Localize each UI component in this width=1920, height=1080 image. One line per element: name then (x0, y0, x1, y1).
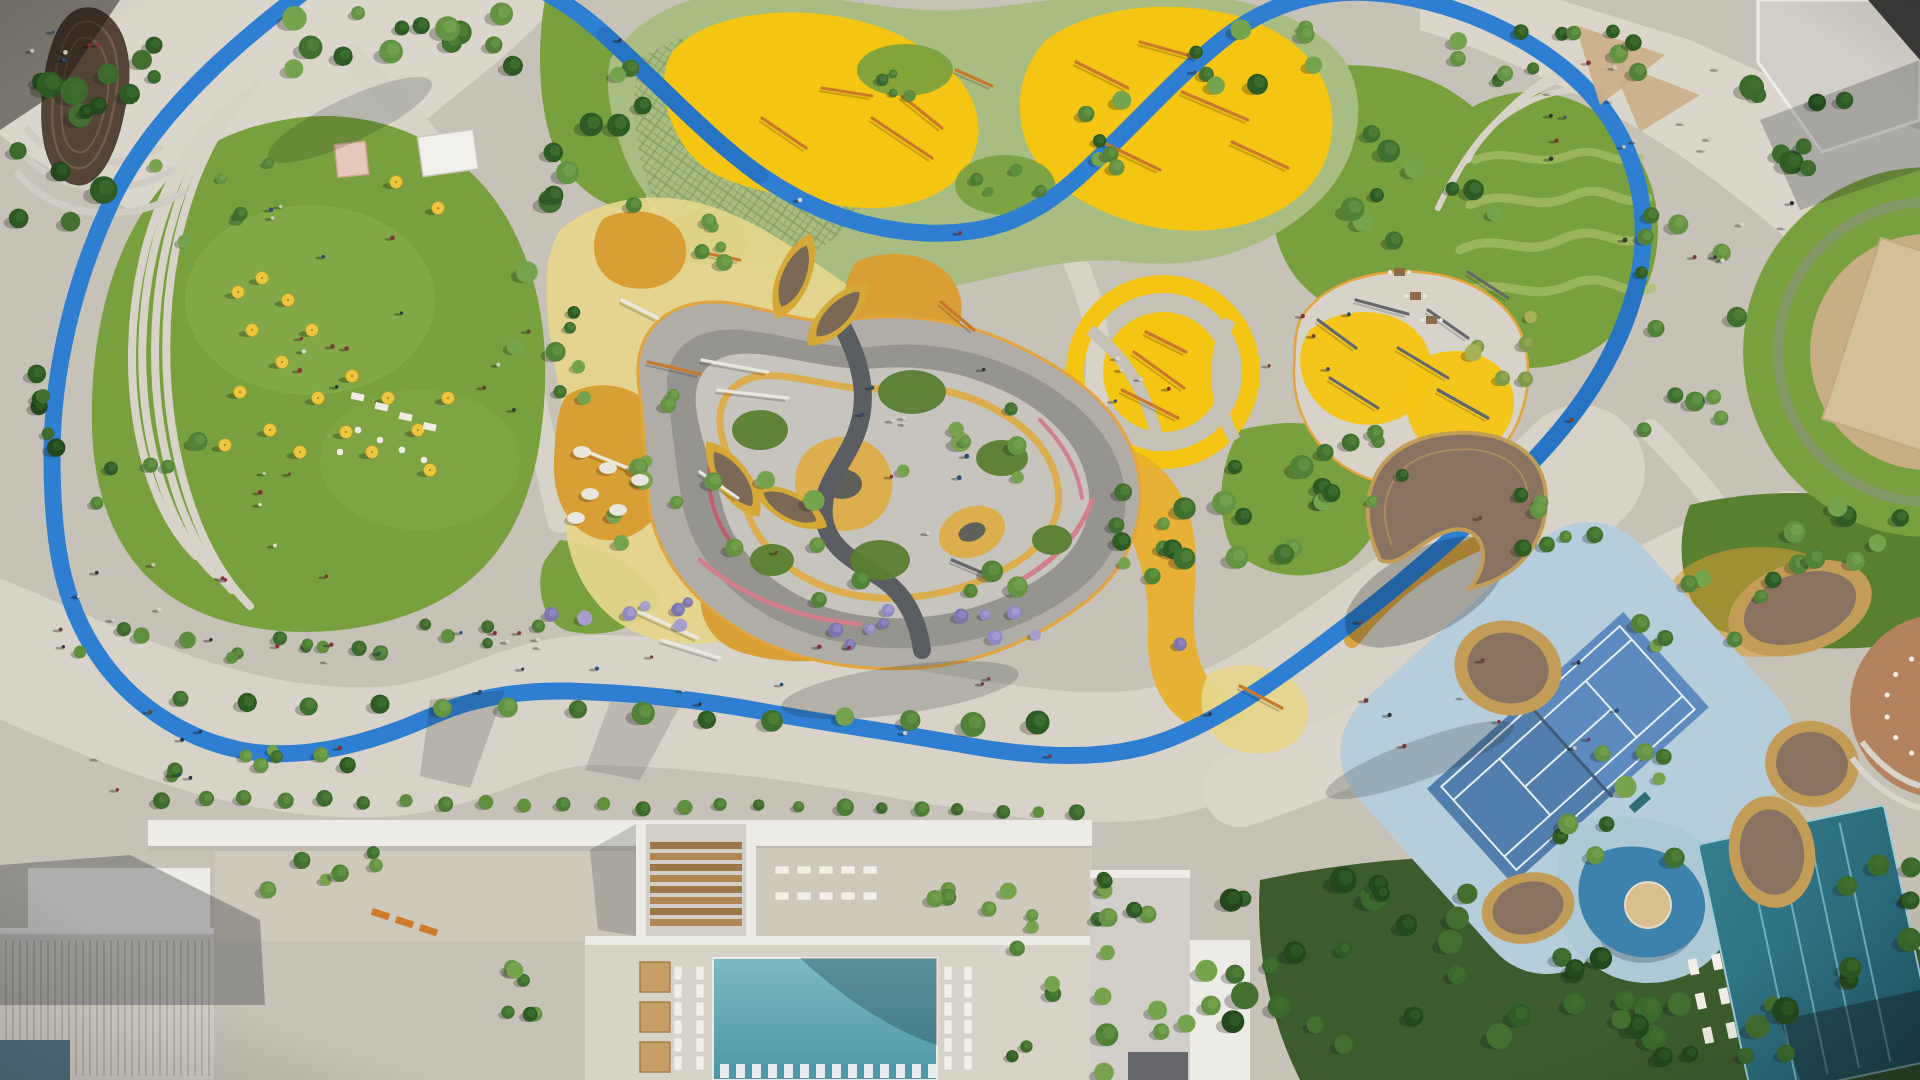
vignette (0, 0, 1920, 1080)
park-masterplan-aerial-render (0, 0, 1920, 1080)
